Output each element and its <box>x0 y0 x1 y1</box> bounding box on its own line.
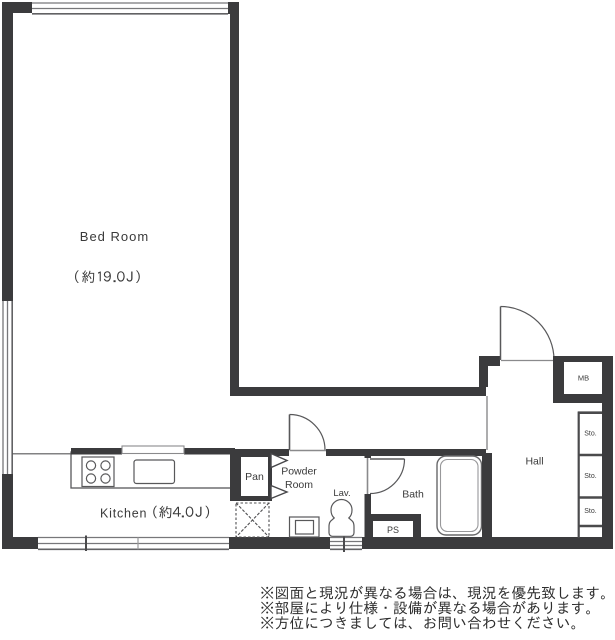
svg-text:MB: MB <box>578 374 589 383</box>
svg-text:PS: PS <box>387 525 399 535</box>
svg-text:Pan: Pan <box>245 471 264 483</box>
svg-text:Sto.: Sto. <box>584 473 597 480</box>
svg-text:Kitchen: Kitchen <box>100 507 147 521</box>
svg-text:Hall: Hall <box>525 456 543 468</box>
svg-text:Bath: Bath <box>402 489 424 501</box>
svg-text:Bed Room: Bed Room <box>80 229 149 244</box>
svg-text:Lav.: Lav. <box>333 488 350 499</box>
svg-text:Sto.: Sto. <box>584 508 597 515</box>
svg-text:Sto.: Sto. <box>584 431 597 438</box>
svg-text:Powder: Powder <box>281 466 317 478</box>
svg-text:Room: Room <box>285 479 313 491</box>
